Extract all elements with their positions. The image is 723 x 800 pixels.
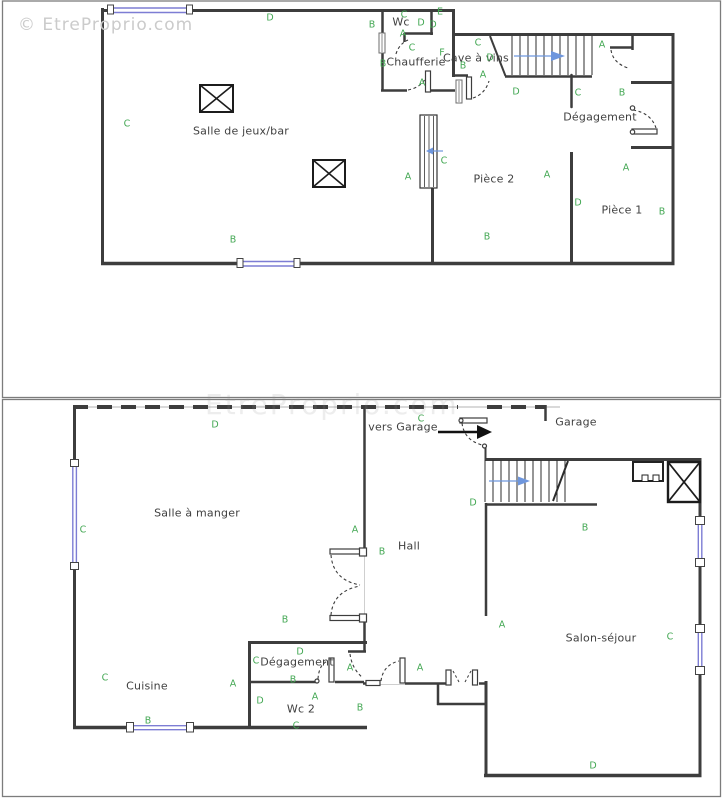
floor-plan-page: © EtreProprio.com EtreProprio.com Salle … bbox=[0, 0, 723, 800]
upper-plan bbox=[101, 5, 675, 268]
upper-windows bbox=[108, 5, 301, 268]
column-symbol bbox=[200, 85, 233, 112]
upper-stairs-direction-arrow bbox=[514, 51, 565, 61]
column-symbol bbox=[313, 160, 345, 187]
plan-frame-top bbox=[3, 1, 721, 398]
floor-plan-canvas bbox=[0, 0, 723, 800]
chimney-fixture bbox=[633, 462, 663, 482]
lower-windows bbox=[71, 460, 705, 733]
lower-door-leaves bbox=[315, 418, 487, 686]
lower-walls bbox=[73, 405, 702, 777]
lower-plan bbox=[71, 405, 705, 777]
upper-walls bbox=[101, 8, 675, 265]
radiator-symbol bbox=[379, 33, 462, 103]
column-symbol bbox=[668, 462, 700, 502]
vers-garage-arrow bbox=[438, 425, 492, 439]
